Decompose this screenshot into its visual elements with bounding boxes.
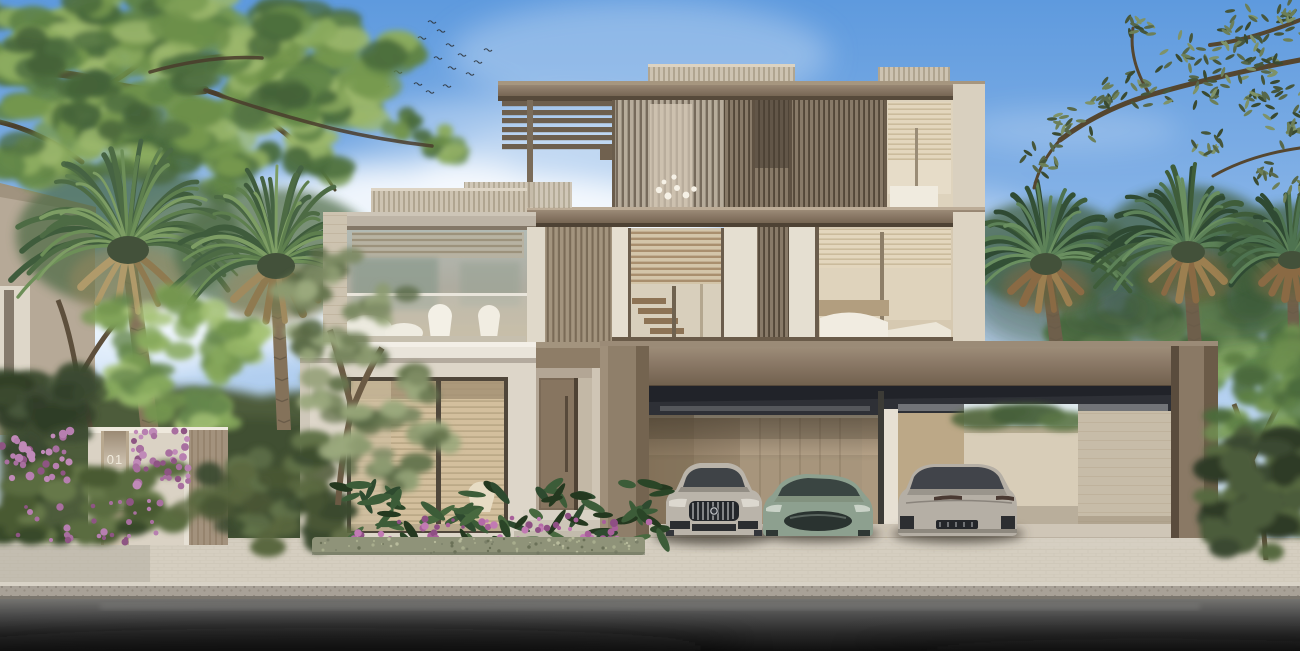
svg-text:01: 01	[107, 452, 123, 467]
